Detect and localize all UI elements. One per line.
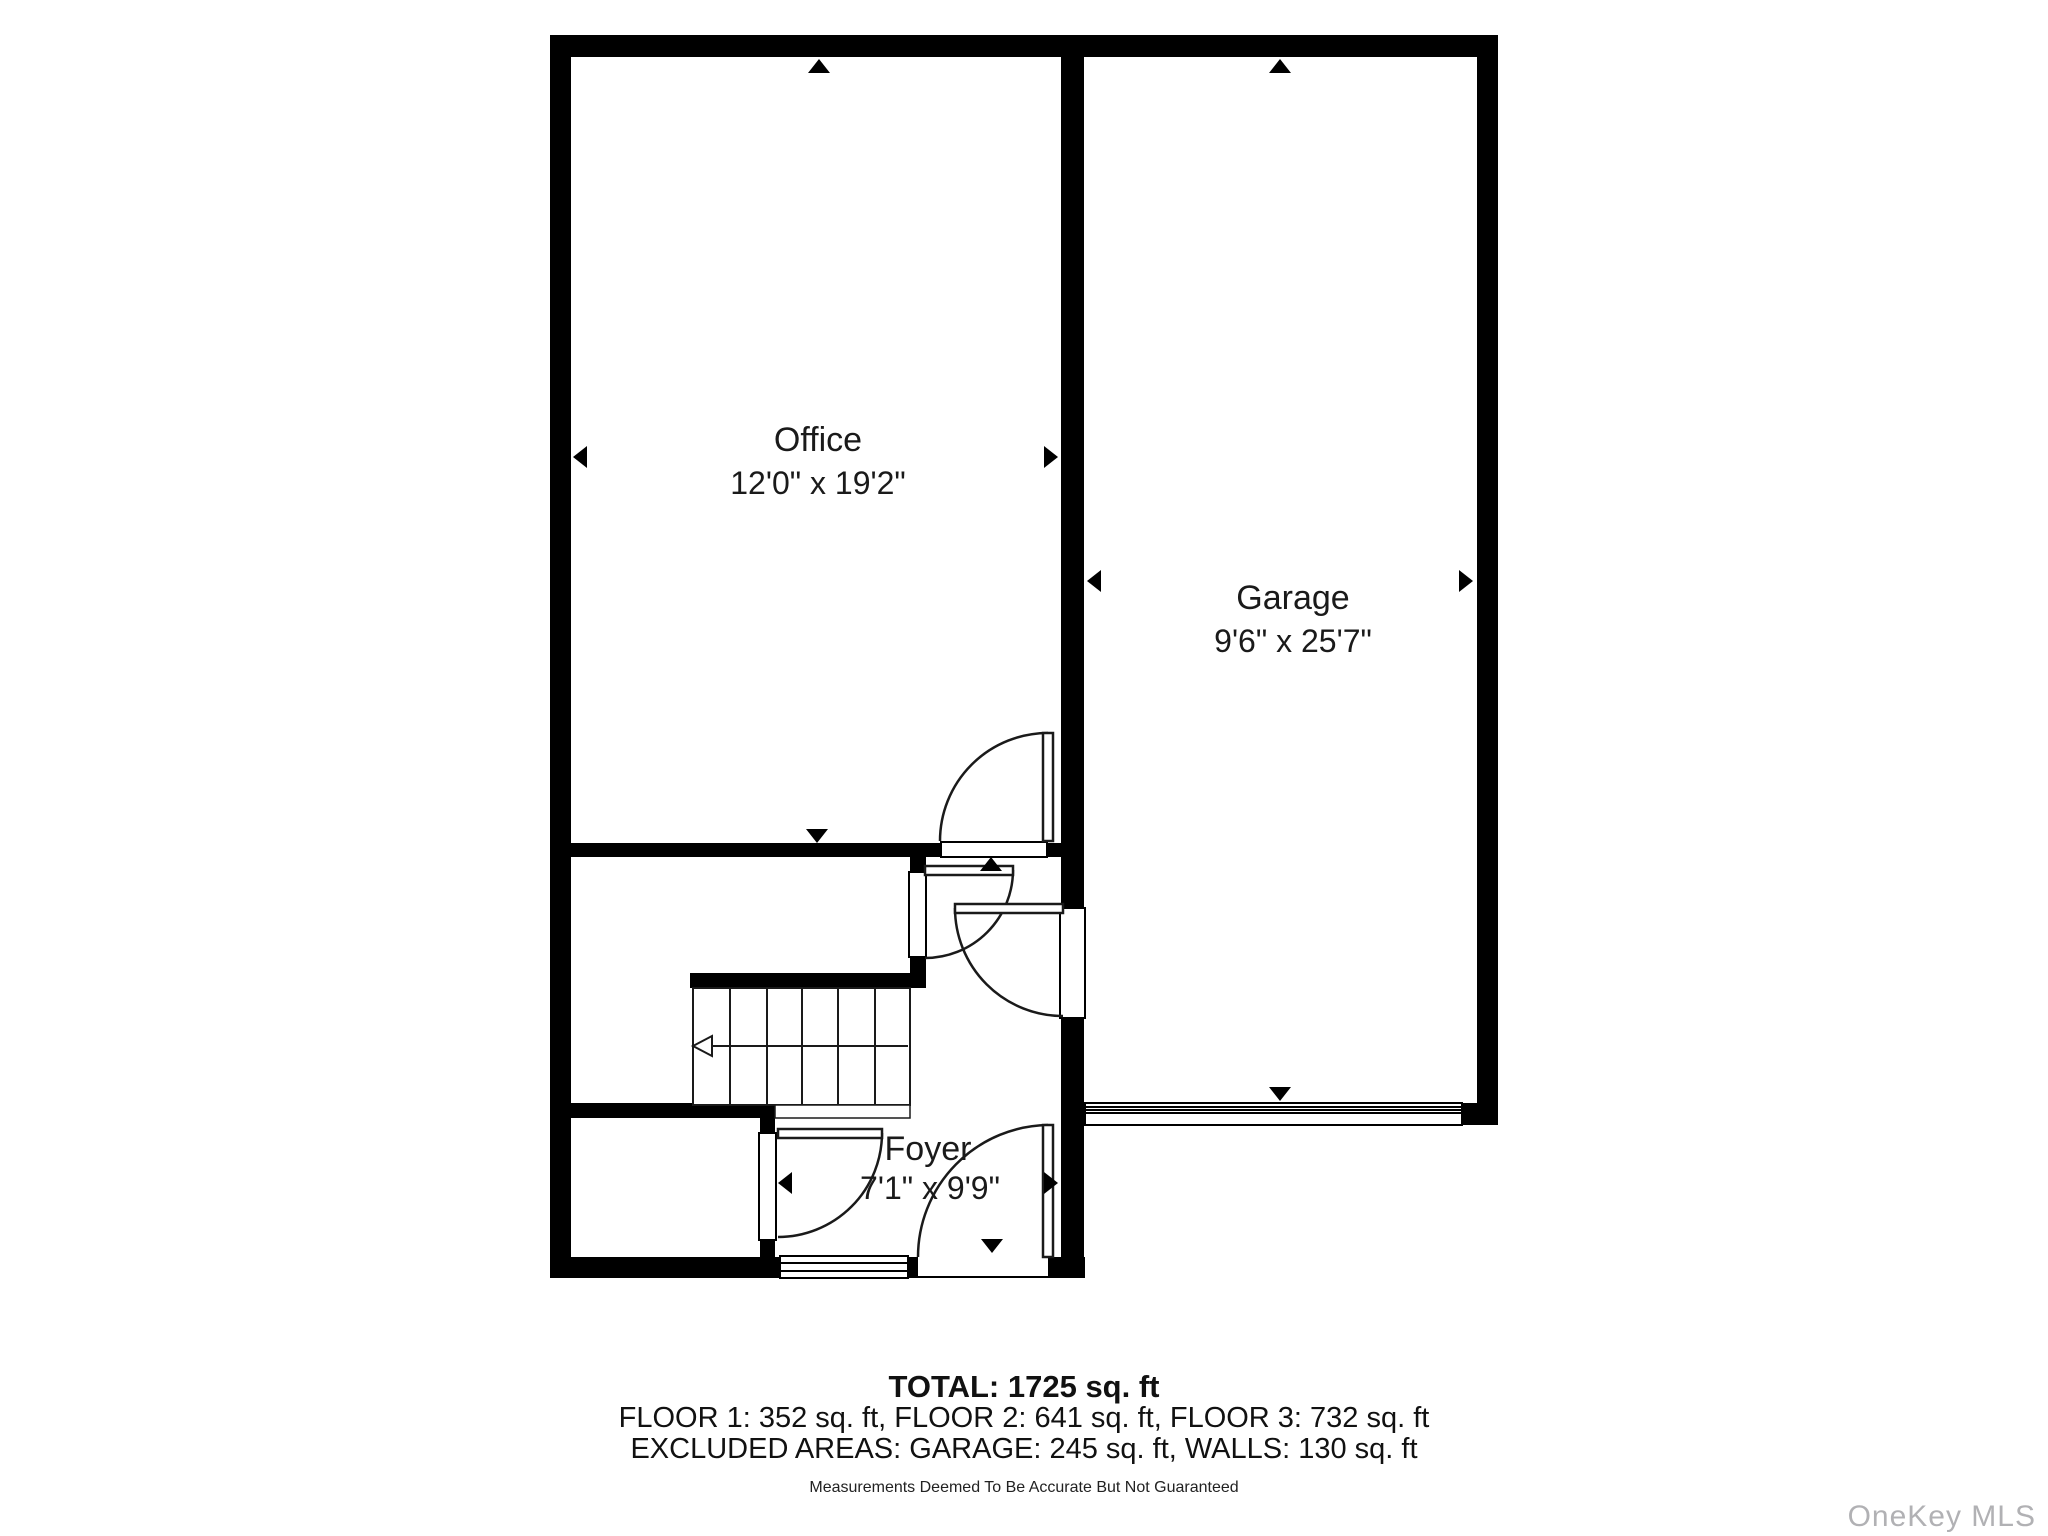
total-area: TOTAL: 1725 sq. ft: [0, 1371, 2048, 1403]
wall-closet-nub: [760, 1118, 775, 1133]
area-summary: TOTAL: 1725 sq. ft FLOOR 1: 352 sq. ft, …: [0, 1371, 2048, 1497]
garage-dimensions: 9'6" x 25'7": [1214, 623, 1372, 659]
onekey-mls-watermark: OneKey MLS: [1848, 1500, 2036, 1534]
window: [780, 1256, 908, 1278]
floor-plan-page: Office 12'0" x 19'2" Garage 9'6" x 25'7"…: [0, 0, 2048, 1536]
excluded-areas: EXCLUDED AREAS: GARAGE: 245 sq. ft, WALL…: [0, 1434, 2048, 1465]
foyer-arrow-down: [981, 1239, 1003, 1253]
wall-garage-door-cap: [1462, 1103, 1498, 1125]
garage-arrow-up: [1269, 59, 1291, 73]
wall-office-bottom-stub: [1048, 843, 1061, 857]
foyer-arrow-up: [980, 857, 1002, 871]
office-arrow-right: [1044, 446, 1058, 468]
wall-midroom-upper: [910, 857, 926, 872]
foyer-door-frame: [759, 1133, 776, 1240]
foyer-dimensions: 7'1" x 9'9": [860, 1170, 1000, 1206]
office-door-frame: [941, 842, 1047, 857]
hall-garage-door-arc: [955, 908, 1063, 1016]
wall-divider-upper: [1061, 35, 1084, 908]
wall-divider-lower: [1061, 1018, 1084, 1257]
stairs: [693, 988, 910, 1118]
office-door-leaf: [1043, 733, 1053, 841]
office-label: Office: [774, 421, 862, 459]
hall-garage-door-leaf: [955, 904, 1063, 913]
garage-arrow-left: [1087, 570, 1101, 592]
floor-areas: FLOOR 1: 352 sq. ft, FLOOR 2: 641 sq. ft…: [0, 1403, 2048, 1434]
garage-label: Garage: [1236, 579, 1349, 617]
disclaimer: Measurements Deemed To Be Accurate But N…: [0, 1479, 2048, 1497]
floor-plan-drawing: Office 12'0" x 19'2" Garage 9'6" x 25'7"…: [0, 0, 2048, 1536]
foyer-door-leaf: [778, 1129, 882, 1138]
stair-landing: [775, 1105, 910, 1118]
wall-top: [550, 35, 1498, 57]
foyer-arrow-left: [778, 1172, 792, 1194]
wall-bottom-a: [550, 1257, 780, 1278]
wall-stairwell-top: [690, 973, 925, 988]
front-door-opening: [918, 1256, 1048, 1278]
wall-office-bottom: [550, 843, 940, 857]
wall-right: [1477, 35, 1498, 1125]
office-arrow-left: [573, 446, 587, 468]
garage-arrow-down: [1269, 1087, 1291, 1101]
wall-bottom-b: [908, 1257, 918, 1278]
wall-bottom-c: [1048, 1257, 1085, 1278]
office-door-arc: [940, 733, 1048, 841]
office-arrow-down: [806, 829, 828, 843]
wall-left: [550, 35, 571, 1278]
wall-closet-right-lower: [760, 1240, 775, 1258]
hall-garage-door-frame: [1060, 908, 1085, 1018]
midroom-door-frame: [909, 872, 926, 957]
garage-arrow-right: [1459, 570, 1473, 592]
foyer-label: Foyer: [885, 1130, 972, 1168]
office-arrow-up: [808, 59, 830, 73]
office-dimensions: 12'0" x 19'2": [730, 465, 906, 501]
